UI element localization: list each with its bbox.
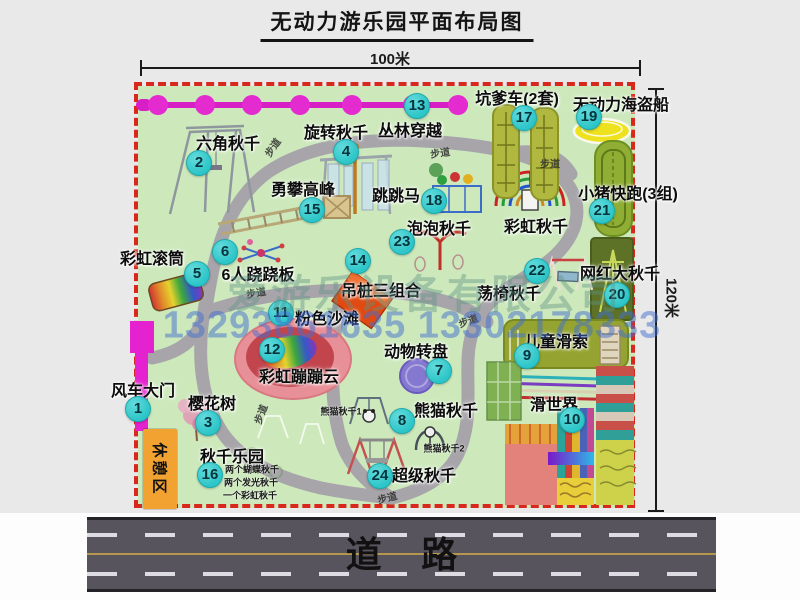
jungle-crossing-chain — [136, 95, 468, 115]
animal-turntable-shape — [400, 359, 434, 393]
pirate-ship-shape — [574, 119, 630, 143]
panda-swings-shape — [350, 398, 444, 450]
bubble-swing-shape — [414, 232, 466, 271]
big-swing-shape — [591, 238, 633, 320]
jumping-horses-shape — [429, 163, 481, 212]
width-dimension-label: 100米 — [370, 48, 410, 69]
rest-area-zone: 休憩区 — [143, 429, 177, 509]
pink-beach-shape — [235, 319, 351, 399]
piggy-run-shape — [595, 141, 632, 236]
chair-swing-shape — [544, 260, 592, 290]
page-title: 无动力游乐园平面布局图 — [261, 6, 534, 42]
rainbow-roller-shape — [147, 272, 204, 313]
windmill-gate-shape — [130, 321, 154, 431]
rest-area-label: 休憩区 — [150, 442, 171, 496]
cherry-tree-shape — [178, 399, 212, 441]
seesaw-shape — [238, 239, 285, 263]
park-layout-page: 无动力游乐园平面布局图 100米 120米 — [0, 0, 800, 600]
height-dimension-label: 120米 — [662, 278, 683, 318]
